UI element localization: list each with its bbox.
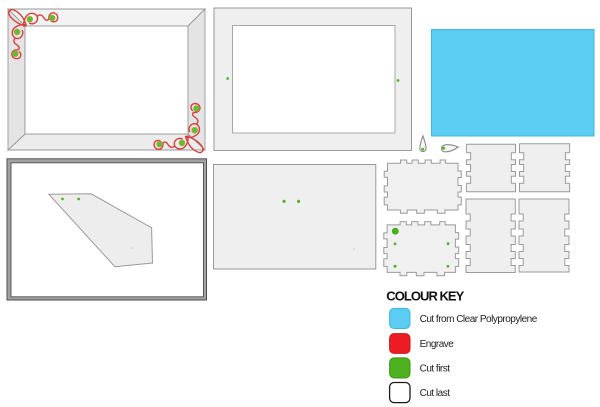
svg-text:COLOURKEY: COLOURKEY <box>386 289 464 304</box>
svg-text:Cut first: Cut first <box>420 364 451 375</box>
svg-text:Cut from Clear Polypropylene: Cut from Clear Polypropylene <box>420 314 538 325</box>
svg-text:Engrave: Engrave <box>420 339 455 350</box>
svg-text:Cut last: Cut last <box>420 388 451 399</box>
